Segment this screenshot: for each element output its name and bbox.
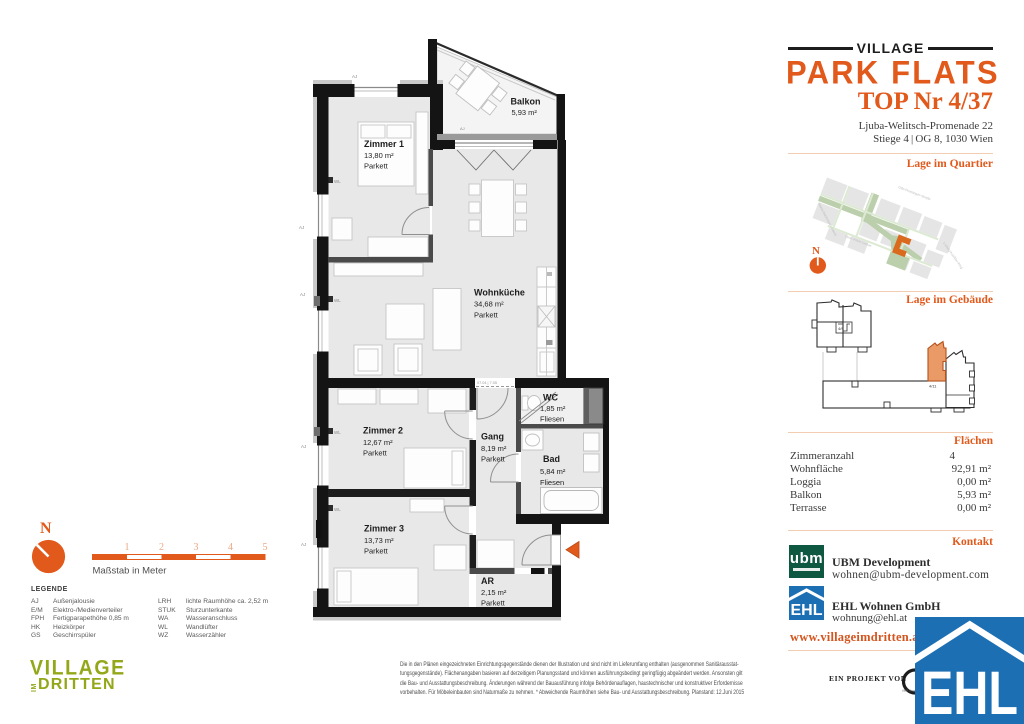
svg-text:5,93 m²: 5,93 m² [512,108,538,117]
svg-text:AJ: AJ [352,74,357,79]
svg-text:Zimmer 1: Zimmer 1 [364,139,404,149]
svg-text:2: 2 [159,542,164,553]
svg-text:Parkett: Parkett [481,599,506,608]
svg-text:N: N [40,520,52,537]
svg-text:8,19 m²: 8,19 m² [481,444,507,453]
svg-text:AJ: AJ [301,444,306,449]
svg-text:Parkett: Parkett [363,449,388,458]
svg-text:Parkett: Parkett [364,162,389,171]
svg-text:Parkett: Parkett [474,311,499,320]
svg-text:1: 1 [125,542,130,553]
svg-text:WL: WL [334,430,341,435]
svg-text:WL: WL [334,179,341,184]
svg-text:WL: WL [334,298,341,303]
svg-text:EHL: EHL [791,602,823,619]
svg-text:Zimmer 2: Zimmer 2 [363,426,403,436]
svg-text:N: N [812,245,820,257]
svg-text:AJ: AJ [301,542,306,547]
svg-text:3: 3 [194,542,199,553]
svg-text:Otto-Preminger-Straße: Otto-Preminger-Straße [898,185,932,201]
svg-text:13,73 m²: 13,73 m² [364,536,394,545]
svg-text:Balkon: Balkon [511,97,541,107]
svg-text:4/9: 4/9 [838,326,844,331]
svg-text:Parkett: Parkett [364,547,389,556]
svg-text:AJ: AJ [299,225,304,230]
svg-text:AJ: AJ [300,292,305,297]
svg-text:Ludwig-Koeßler-Weg: Ludwig-Koeßler-Weg [942,241,964,269]
svg-text:Maßstab in Meter: Maßstab in Meter [93,566,167,577]
svg-text:WC: WC [543,393,558,403]
svg-text:07.04 | 7.05: 07.04 | 7.05 [477,381,497,385]
svg-text:Fliesen: Fliesen [540,478,564,487]
svg-text:5,84 m²: 5,84 m² [540,467,566,476]
svg-text:34,68 m²: 34,68 m² [474,300,504,309]
svg-text:AJ: AJ [460,126,465,131]
svg-text:Gang: Gang [481,432,504,442]
svg-text:Bad: Bad [543,454,560,464]
svg-text:5: 5 [263,542,268,553]
svg-text:Parkett: Parkett [481,455,506,464]
svg-text:Wohnküche: Wohnküche [474,288,525,298]
svg-text:1,85 m²: 1,85 m² [540,404,566,413]
svg-text:Zimmer 3: Zimmer 3 [364,524,404,534]
svg-text:12,67 m²: 12,67 m² [363,438,393,447]
svg-text:13,80 m²: 13,80 m² [364,151,394,160]
svg-text:2,15 m²: 2,15 m² [481,588,507,597]
svg-text:Fliesen: Fliesen [540,415,564,424]
svg-text:EHL: EHL [921,659,1018,724]
svg-text:WL: WL [334,507,341,512]
svg-text:AR: AR [481,576,494,586]
svg-text:4/11: 4/11 [929,384,937,389]
svg-text:4: 4 [228,542,233,553]
